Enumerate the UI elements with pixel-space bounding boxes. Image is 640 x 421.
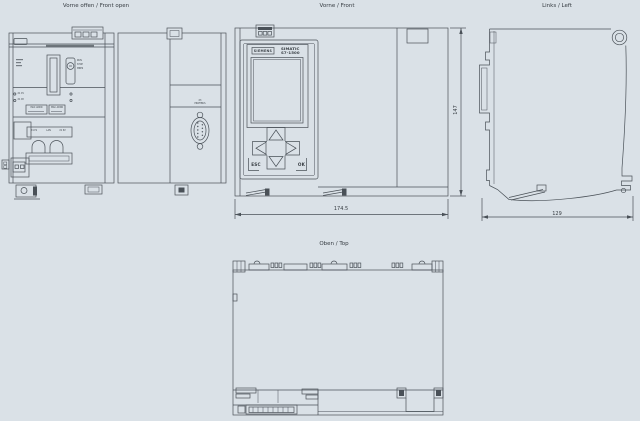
small-print-marks — [16, 59, 23, 66]
view-title-left: Links / Left — [517, 3, 597, 10]
arrow-down-icon — [269, 157, 283, 167]
arrow-right-icon — [286, 142, 296, 154]
esc-key-label: ESC — [250, 162, 262, 167]
top-edge-clips — [233, 261, 443, 272]
rating-label — [14, 39, 27, 45]
cpu-left-module — [2, 27, 114, 199]
view-title-front: Vorne / Front — [297, 3, 377, 10]
side-tick — [233, 294, 237, 301]
power-connector — [2, 158, 29, 177]
rj45-ports — [26, 141, 72, 165]
port-label-lan: LAN — [43, 130, 54, 133]
bottom-screw — [621, 188, 625, 192]
bottom-clip-right-module — [175, 185, 188, 195]
front-edge-connectors-top — [236, 388, 318, 414]
left-key-frame — [253, 142, 268, 156]
ok-key-label: OK — [297, 162, 307, 167]
led-x1p1-label: X1 P1 — [18, 93, 32, 96]
width-dimension-label: 174.5 — [321, 206, 361, 212]
product-name-line2: S7-1500 — [281, 51, 307, 56]
rj45-port-1 — [32, 141, 45, 154]
front-open-view-drawing — [2, 27, 226, 199]
depth-dimension-label: 129 — [537, 211, 577, 217]
right-key-frame — [285, 142, 300, 156]
top-cover-connector — [167, 28, 182, 39]
rear-clip-channel — [397, 388, 443, 412]
bottom-profile — [490, 186, 617, 201]
display-screen — [251, 58, 303, 124]
front-edge-profile — [617, 46, 633, 191]
led-x1p2-label: X1 P2 — [18, 99, 32, 102]
cpu-right-module — [118, 28, 226, 195]
connector-hatch — [253, 407, 288, 413]
front-top-connector — [256, 25, 274, 37]
top-view-drawing — [233, 261, 443, 415]
bottom-mounting-clips — [14, 185, 102, 199]
mac-address-label-2: MAC ADDR — [49, 107, 65, 110]
din-rail-side-profile — [480, 29, 490, 186]
port-label-x1p1: X1 P1 — [28, 130, 40, 133]
mode-mres-label: MRES — [77, 68, 89, 71]
top-body — [233, 270, 443, 415]
port-label-x1p2: X1 P2 — [56, 130, 69, 133]
left-view-drawing — [480, 29, 634, 221]
view-title-front-open: Vorne offen / Front open — [36, 3, 156, 10]
profibus-dsub-connector — [191, 112, 209, 149]
dimensional-drawing-page: Vorne offen / Front open Vorne / Front L… — [0, 0, 640, 421]
front-view-drawing — [235, 25, 466, 219]
rail-block — [482, 68, 488, 110]
top-clamp-screw — [612, 30, 627, 45]
mode-switch — [66, 58, 75, 84]
top-right-cover — [407, 29, 428, 43]
bottom-latches — [246, 189, 347, 196]
dsub-label-profibus: PROFIBUS — [188, 103, 212, 106]
order-number-text-bar — [46, 45, 94, 47]
display-slot — [47, 55, 60, 95]
dsub-pins — [197, 122, 203, 137]
bottom-latch-detail — [509, 185, 546, 200]
height-dimension-label: 147 — [453, 100, 459, 120]
view-title-top: Oben / Top — [294, 241, 374, 248]
top-terminal-connector — [72, 27, 103, 39]
arrow-up-icon — [269, 130, 283, 140]
mac-address-label-1: MAC ADDR — [26, 107, 47, 110]
display-panel — [247, 45, 308, 128]
rj45-port-2 — [50, 141, 63, 154]
siemens-logo-text: SIEMENS — [252, 48, 274, 55]
arrow-left-icon — [256, 142, 266, 154]
